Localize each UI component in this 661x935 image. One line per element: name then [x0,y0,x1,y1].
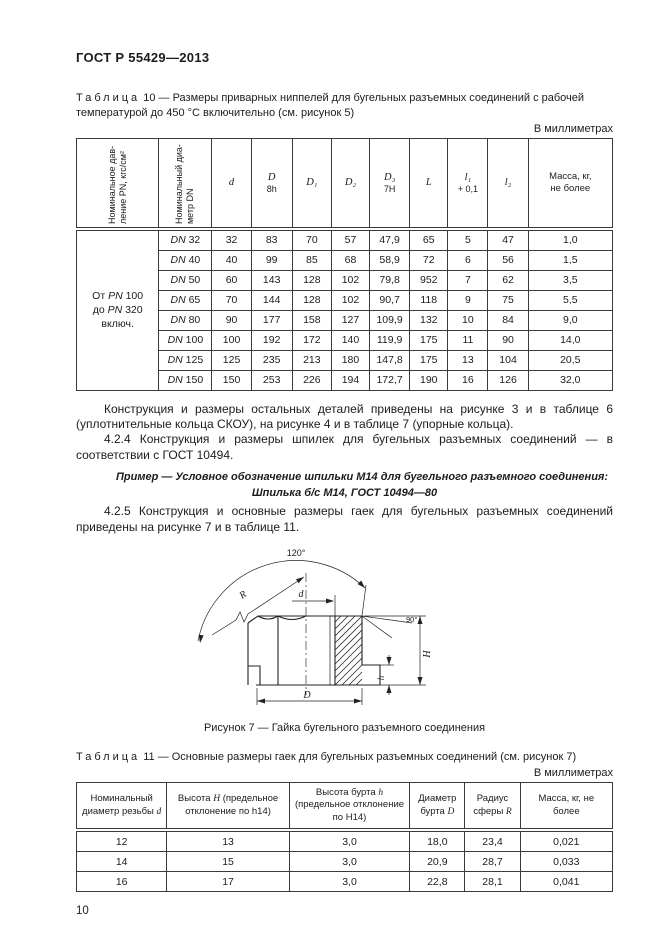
table10-value-cell: 70 [292,229,331,251]
table10-value-cell: 75 [488,290,528,310]
figure-7: 120° R d 90° H h D [76,543,613,718]
table10-header-l2: l₂ [488,138,528,229]
table10-value-cell: 158 [292,310,331,330]
table10-value-cell: 65 [410,229,448,251]
text-segment: 80 [186,314,201,326]
table10-value-cell: 68 [331,250,369,270]
table10-group-label-cell: От PN 100до PN 320 включ. [77,229,159,391]
table10-value-cell: 99 [251,250,292,270]
table10-dn-cell: DN 125 [159,350,212,370]
table11-units-note: В миллиметрах [76,767,613,779]
table10-value-cell: 57 [331,229,369,251]
table10-value-cell: 72 [410,250,448,270]
table10-value-cell: 102 [331,290,369,310]
table10-header-d: d [212,138,251,229]
table10-value-cell: 10 [448,310,488,330]
table10-header-mass: Масса, кг,не более [528,138,612,229]
text-segment: DN [171,234,186,246]
text-segment: 40 [186,254,201,266]
table10-units-note: В миллиметрах [76,123,613,135]
table10-value-cell: 20,5 [528,350,612,370]
table11-caption: Таблица 11 — Основные размеры гаек для б… [76,750,613,765]
rotated-header-line: Номинальное дав- [107,142,118,224]
table11-value-cell: 3,0 [289,852,409,872]
table10-value-cell: 16 [448,370,488,390]
table10-header-pressure: Номинальное дав-ление PN, кгс/см² [77,138,159,229]
figure-label-H: H [422,650,433,659]
table10-value-cell: 132 [410,310,448,330]
table10-value-cell: 175 [410,330,448,350]
table10-value-cell: 14,0 [528,330,612,350]
table10-value-cell: 102 [331,270,369,290]
table10-value-cell: 952 [410,270,448,290]
text-segment: DN [168,334,183,346]
table10-value-cell: 32,0 [528,370,612,390]
document-page: ГОСТ Р 55429—2013 Таблица 10 — Размеры п… [0,0,661,935]
paragraph-details: Конструкция и размеры остальных деталей … [76,402,613,433]
table10-value-cell: 3,5 [528,270,612,290]
paragraph-4-2-4: 4.2.4 Конструкция и размеры шпилек для б… [76,432,613,463]
table11-value-cell: 16 [77,872,167,892]
table11-header-sphere-radius: Радиус сферы R [465,782,520,830]
table11-value-cell: 15 [167,852,289,872]
table11-header-row: Номинальный диаметр резьбы d Высота H (п… [77,782,613,830]
table10-caption-word: Таблица [76,92,140,104]
table10: Номинальное дав-ление PN, кгс/см² Номина… [76,138,613,391]
table10-value-cell: 127 [331,310,369,330]
table10-dn-cell: DN 100 [159,330,212,350]
table10-value-cell: 253 [251,370,292,390]
table10-value-cell: 140 [331,330,369,350]
text-segment: 32 [186,234,201,246]
table10-value-cell: 104 [488,350,528,370]
text-segment: От [92,290,108,302]
table10-value-cell: 177 [251,310,292,330]
table10-value-cell: 6 [448,250,488,270]
table11-header-height: Высота H (предельное отклонение по h14) [167,782,289,830]
table11-value-cell: 14 [77,852,167,872]
table10-value-cell: 84 [488,310,528,330]
table10-value-cell: 83 [251,229,292,251]
text-segment: 50 [186,274,201,286]
table10-dn-cell: DN 150 [159,370,212,390]
text-segment: PN [108,290,123,302]
table10-value-cell: 128 [292,290,331,310]
table11-caption-text: — Основные размеры гаек для бугельных ра… [158,751,576,763]
table11-value-cell: 3,0 [289,830,409,852]
figure-label-90deg: 90° [406,615,417,624]
table10-value-cell: 62 [488,270,528,290]
table10-value-cell: 1,0 [528,229,612,251]
table10-value-cell: 175 [410,350,448,370]
figure-label-D: D [302,690,311,701]
text-segment: DN [171,314,186,326]
table10-caption: Таблица 10 — Размеры приварных ниппелей … [76,91,613,121]
table10-value-cell: 147,8 [370,350,410,370]
table10-value-cell: 144 [251,290,292,310]
text-segment: до [93,304,108,316]
table10-value-cell: 213 [292,350,331,370]
table10-value-cell: 47 [488,229,528,251]
example-designation: Пример — Условное обозначение шпильки М1… [76,470,613,484]
table10-value-cell: 90 [488,330,528,350]
table10-value-cell: 79,8 [370,270,410,290]
paragraph-4-2-5: 4.2.5 Конструкция и основные размеры гае… [76,504,613,535]
table10-value-cell: 47,9 [370,229,410,251]
table10-value-cell: 226 [292,370,331,390]
table10-value-cell: 40 [212,250,251,270]
table10-value-cell: 125 [212,350,251,370]
table10-value-cell: 58,9 [370,250,410,270]
figure-7-caption: Рисунок 7 — Гайка бугельного разъемного … [76,722,613,734]
figure-label-120deg: 120° [286,548,305,558]
table11-header-thread-diameter: Номинальный диаметр резьбы d [77,782,167,830]
table10-header-D1: D₁ [292,138,331,229]
rotated-header-line: метр DN [185,142,196,224]
document-code: ГОСТ Р 55429—2013 [76,50,613,65]
table11-value-cell: 18,0 [410,830,465,852]
table10-value-cell: 32 [212,229,251,251]
table11-value-cell: 12 [77,830,167,852]
table10-value-cell: 90,7 [370,290,410,310]
page-number: 10 [76,905,613,917]
table10-value-cell: 1,5 [528,250,612,270]
table11-header-mass: Масса, кг, не более [520,782,612,830]
table10-value-cell: 118 [410,290,448,310]
table10-value-cell: 192 [251,330,292,350]
table11-header-collar-diameter: Диаметр бурта D [410,782,465,830]
table10-value-cell: 9 [448,290,488,310]
text-segment: DN [171,294,186,306]
table10-header-L: L [410,138,448,229]
text-segment: 100 [123,290,143,302]
table11-value-cell: 22,8 [410,872,465,892]
table10-header-row: Номинальное дав-ление PN, кгс/см² Номина… [77,138,613,229]
table11-value-cell: 13 [167,830,289,852]
table10-value-cell: 13 [448,350,488,370]
table10-value-cell: 5 [448,229,488,251]
rotated-header-line: ление PN, кгс/см² [118,142,129,224]
table10-value-cell: 128 [292,270,331,290]
table10-value-cell: 172,7 [370,370,410,390]
table10-value-cell: 190 [410,370,448,390]
table10-value-cell: 90 [212,310,251,330]
text-segment: DN [171,274,186,286]
section-hatching [335,616,362,685]
text-segment: 65 [186,294,201,306]
table10-caption-number: 10 [143,92,155,104]
table10-value-cell: 9,0 [528,310,612,330]
table10-dn-cell: DN 40 [159,250,212,270]
text-segment: DN [168,354,183,366]
table10-value-cell: 56 [488,250,528,270]
table10-value-cell: 11 [448,330,488,350]
table10-value-cell: 150 [212,370,251,390]
table11-value-cell: 0,021 [520,830,612,852]
table10-row: От PN 100до PN 320 включ.DN 323283705747… [77,229,613,251]
table10-value-cell: 172 [292,330,331,350]
figure-label-h: h [376,675,386,680]
table10-value-cell: 235 [251,350,292,370]
table10-dn-cell: DN 65 [159,290,212,310]
table11-value-cell: 20,9 [410,852,465,872]
table11-row: 16173,022,828,10,041 [77,872,613,892]
table10-value-cell: 7 [448,270,488,290]
table10-value-cell: 5,5 [528,290,612,310]
table10-dn-cell: DN 80 [159,310,212,330]
text-segment: 125 [183,354,203,366]
table10-header-l1: l₁+ 0,1 [448,138,488,229]
text-segment: DN [171,254,186,266]
nut-technical-drawing: 120° R d 90° H h D [180,543,510,713]
table11-value-cell: 28,1 [465,872,520,892]
table11-value-cell: 23,4 [465,830,520,852]
table11: Номинальный диаметр резьбы d Высота H (п… [76,782,613,892]
table11-caption-number: 11 [143,751,154,763]
table10-value-cell: 194 [331,370,369,390]
table11-value-cell: 28,7 [465,852,520,872]
table10-value-cell: 126 [488,370,528,390]
table10-dn-cell: DN 32 [159,229,212,251]
table10-value-cell: 119,9 [370,330,410,350]
text-segment: 150 [183,374,203,386]
table11-value-cell: 17 [167,872,289,892]
text-segment: PN [108,304,123,316]
figure-label-d: d [298,589,304,600]
table11-row: 14153,020,928,70,033 [77,852,613,872]
table10-value-cell: 70 [212,290,251,310]
table11-value-cell: 0,041 [520,872,612,892]
table10-value-cell: 180 [331,350,369,370]
table11-value-cell: 3,0 [289,872,409,892]
table10-value-cell: 85 [292,250,331,270]
table10-header-D: D8h [251,138,292,229]
table11-caption-word: Таблица [76,751,140,763]
table10-header-D3: D₃7H [370,138,410,229]
text-segment: 100 [183,334,203,346]
table10-header-diameter: Номинальный диа-метр DN [159,138,212,229]
table10-dn-cell: DN 50 [159,270,212,290]
table10-value-cell: 60 [212,270,251,290]
table11-row: 12133,018,023,40,021 [77,830,613,852]
example-designation-value: Шпилька б/с М14, ГОСТ 10494—80 [76,487,613,499]
rotated-header-line: Номинальный диа- [175,142,186,224]
table11-value-cell: 0,033 [520,852,612,872]
text-segment: DN [168,374,183,386]
table10-value-cell: 143 [251,270,292,290]
table11-header-collar-height: Высота бурта h (предельное отклонение по… [289,782,409,830]
table10-value-cell: 109,9 [370,310,410,330]
table10-header-D2: D₂ [331,138,369,229]
figure-label-R: R [236,589,248,602]
table10-value-cell: 100 [212,330,251,350]
